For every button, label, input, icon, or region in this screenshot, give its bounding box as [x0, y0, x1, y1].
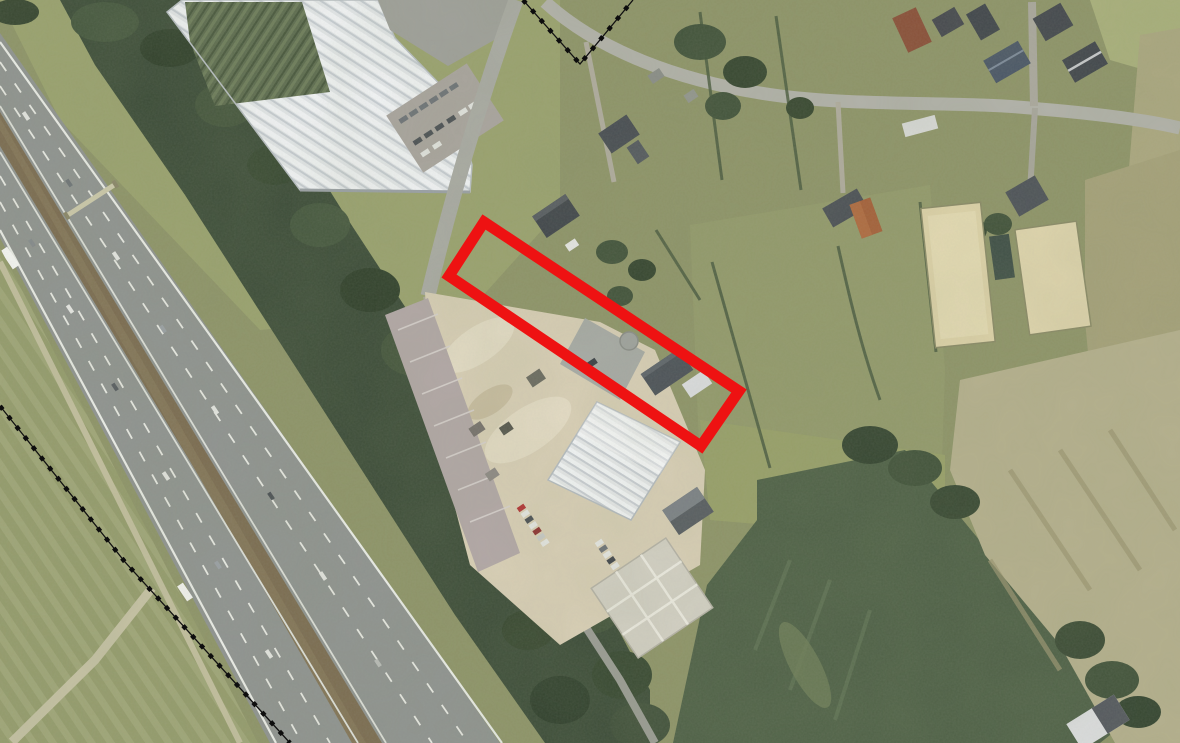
aerial-map	[0, 0, 1180, 743]
aerial-map-viewport[interactable]	[0, 0, 1180, 743]
